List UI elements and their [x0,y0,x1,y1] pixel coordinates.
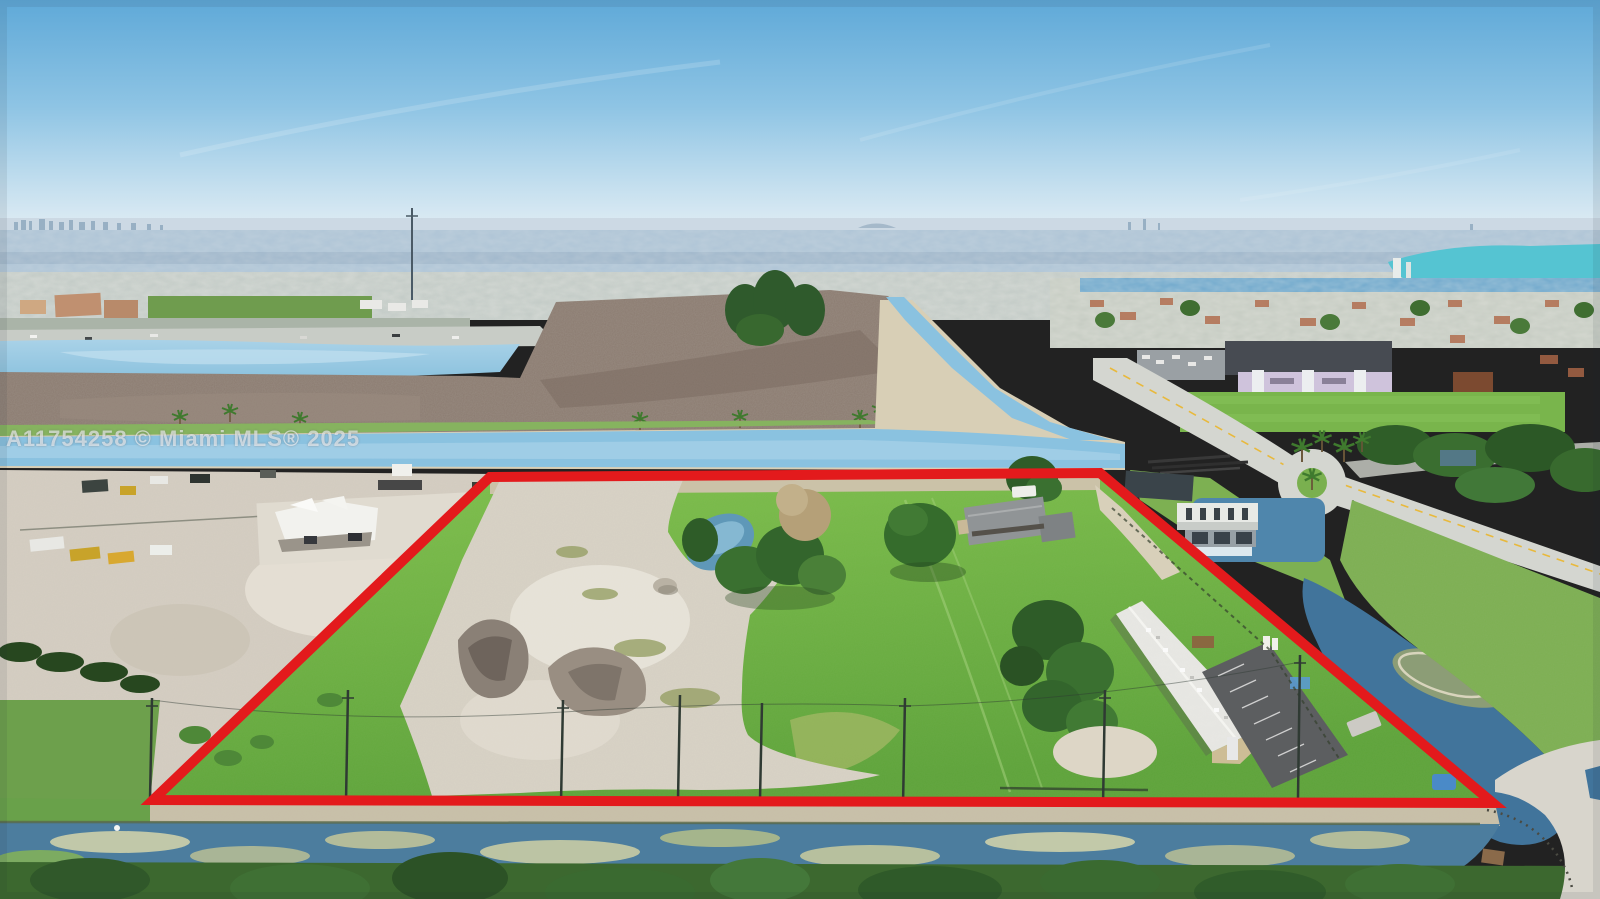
pallet-stack [1192,636,1214,648]
blue-tarp-corner [1432,774,1456,790]
white-pickup-truck [1012,485,1037,498]
school-building [1225,341,1392,394]
aerial-photo-canvas [0,0,1600,899]
aerial-photo: A11754258 © Miami MLS® 2025 [0,0,1600,899]
blue-canopy [1440,450,1476,466]
warehouse-door [1227,737,1238,760]
sky [0,0,1600,236]
left-grass-strip [0,700,160,802]
control-structure-building [1177,503,1258,530]
pavilion-roof [1453,372,1493,392]
green-park [148,296,372,318]
egret [114,825,120,831]
small-dock [1481,849,1505,866]
